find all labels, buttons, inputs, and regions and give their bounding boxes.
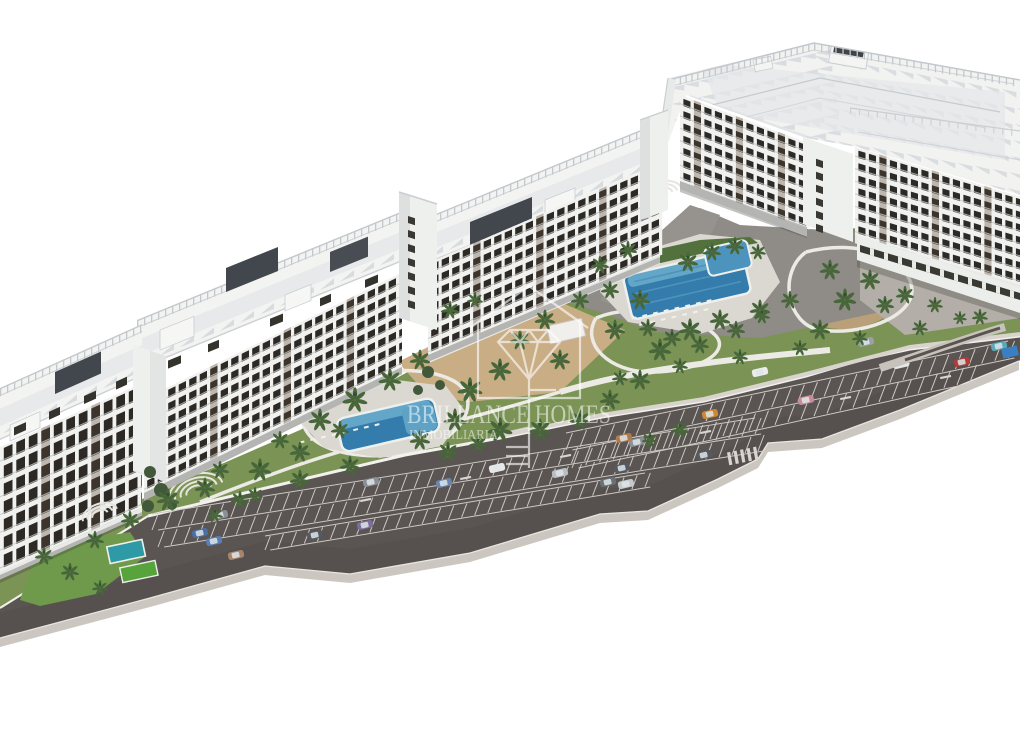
- svg-text:BRILLANCE HOMES: BRILLANCE HOMES: [407, 400, 611, 429]
- svg-text:INMOBILIARIA: INMOBILIARIA: [409, 428, 499, 443]
